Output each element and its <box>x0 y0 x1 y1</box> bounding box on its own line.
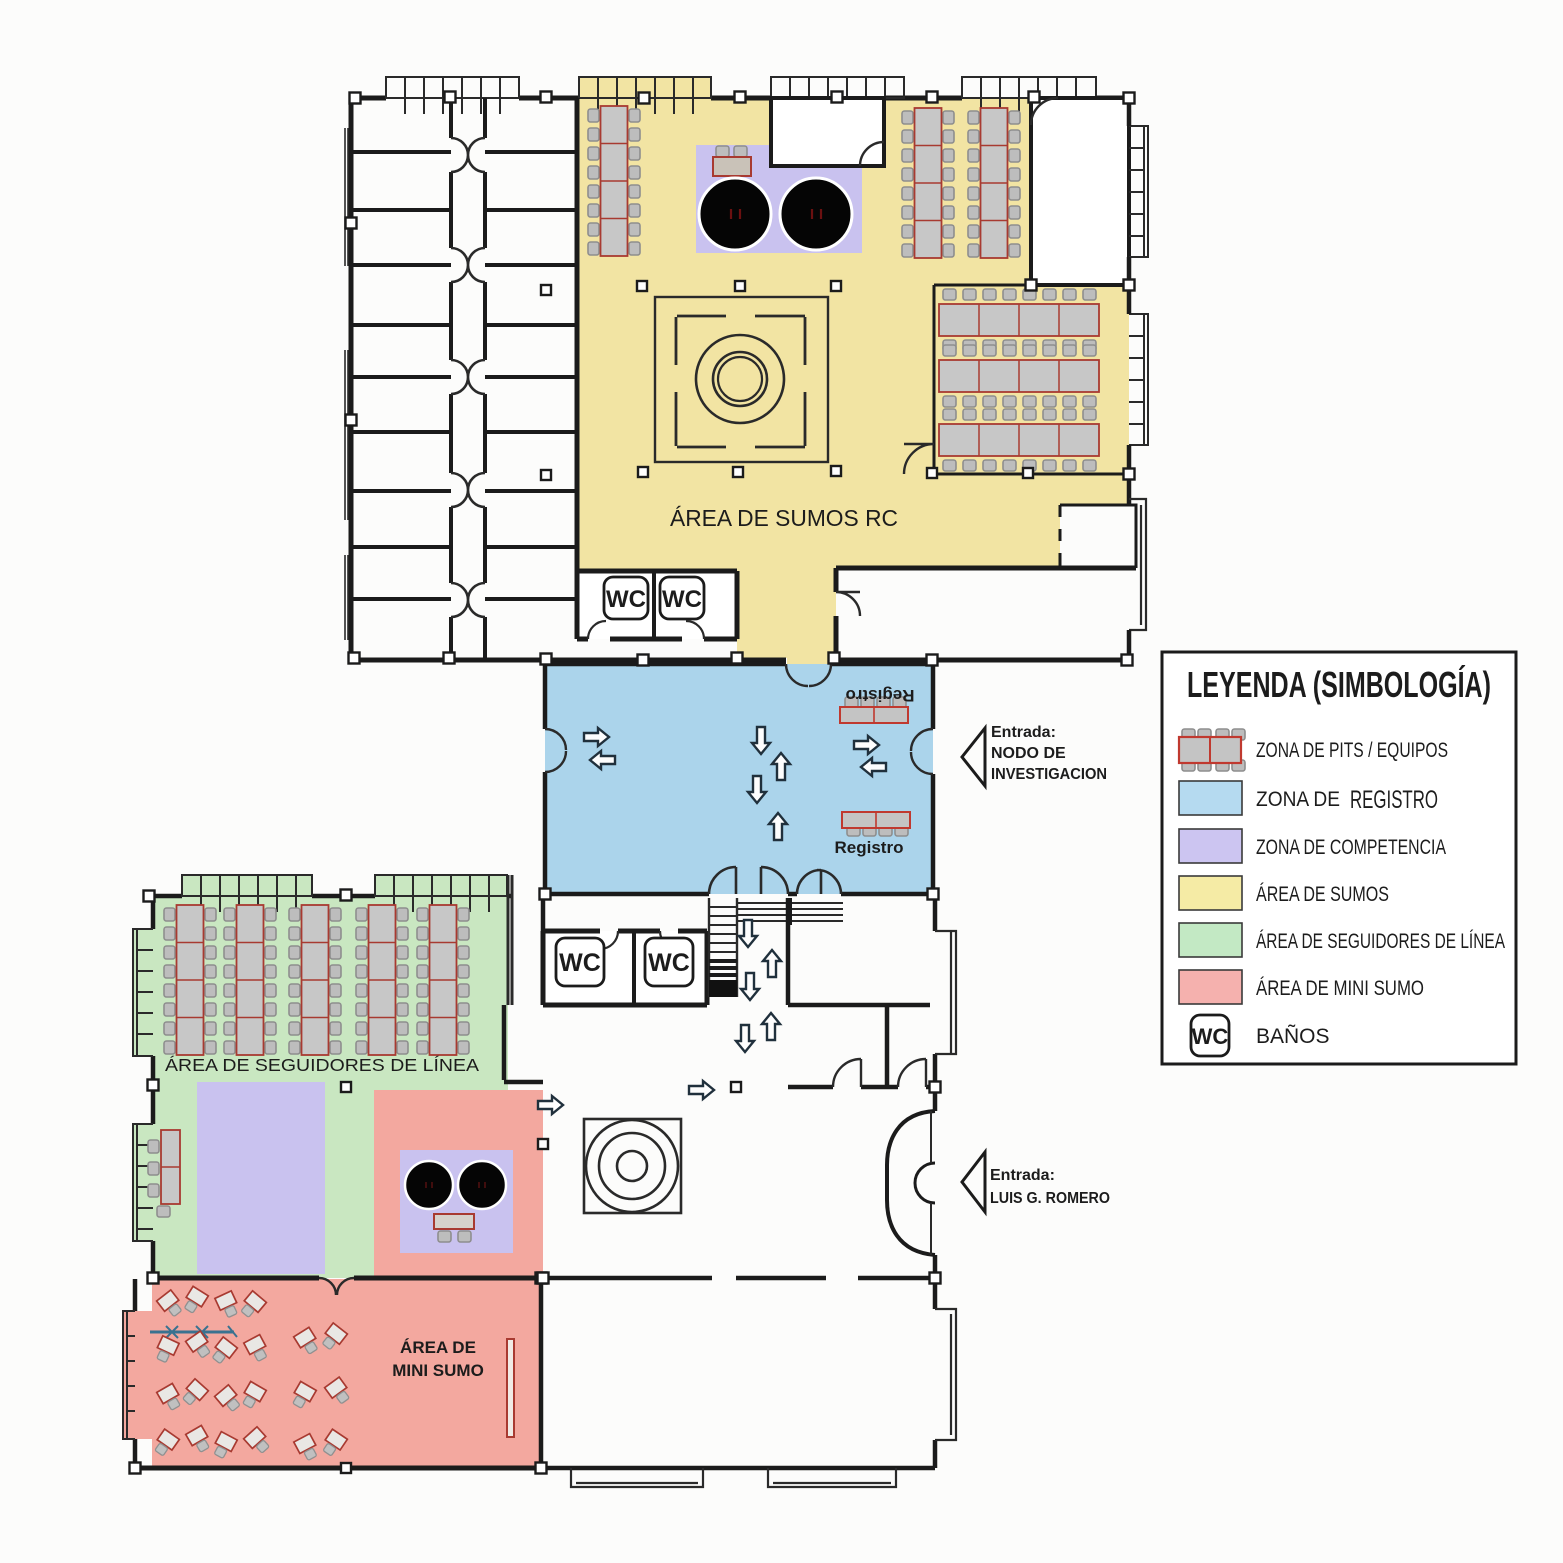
svg-text:ÁREA DE SUMOS: ÁREA DE SUMOS <box>1256 883 1389 906</box>
svg-text:WC: WC <box>648 949 690 977</box>
svg-text:MINI SUMO: MINI SUMO <box>392 1361 484 1380</box>
svg-text:LUIS G. ROMERO: LUIS G. ROMERO <box>990 1190 1110 1207</box>
svg-text:ÁREA DE SEGUIDORES DE LÍNEA: ÁREA DE SEGUIDORES DE LÍNEA <box>165 1055 479 1075</box>
svg-text:WC: WC <box>1192 1024 1229 1049</box>
svg-text:ÁREA DE MINI SUMO: ÁREA DE MINI SUMO <box>1256 977 1424 1000</box>
svg-text:INVESTIGACION: INVESTIGACION <box>991 766 1107 783</box>
svg-text:REGISTRO: REGISTRO <box>1350 786 1438 814</box>
svg-text:ZONA DE COMPETENCIA: ZONA DE COMPETENCIA <box>1256 836 1446 859</box>
svg-text:NODO DE: NODO DE <box>991 745 1066 762</box>
svg-text:ÁREA DE SUMOS RC: ÁREA DE SUMOS RC <box>670 505 898 531</box>
svg-text:WC: WC <box>662 586 702 613</box>
svg-text:ZONA DE: ZONA DE <box>1256 788 1340 811</box>
svg-text:Entrada:: Entrada: <box>990 1167 1055 1184</box>
svg-text:BAÑOS: BAÑOS <box>1256 1024 1330 1048</box>
svg-text:Registro: Registro <box>846 686 915 705</box>
svg-text:WC: WC <box>606 586 646 613</box>
svg-text:Registro: Registro <box>835 838 904 857</box>
svg-text:WC: WC <box>559 949 601 977</box>
svg-text:ÁREA DE SEGUIDORES DE LÍNEA: ÁREA DE SEGUIDORES DE LÍNEA <box>1256 930 1505 953</box>
svg-text:ZONA DE PITS / EQUIPOS: ZONA DE PITS / EQUIPOS <box>1256 739 1448 762</box>
svg-text:LEYENDA (SIMBOLOGÍA): LEYENDA (SIMBOLOGÍA) <box>1187 664 1491 705</box>
svg-text:Entrada:: Entrada: <box>991 724 1056 741</box>
svg-text:ÁREA DE: ÁREA DE <box>400 1338 476 1357</box>
